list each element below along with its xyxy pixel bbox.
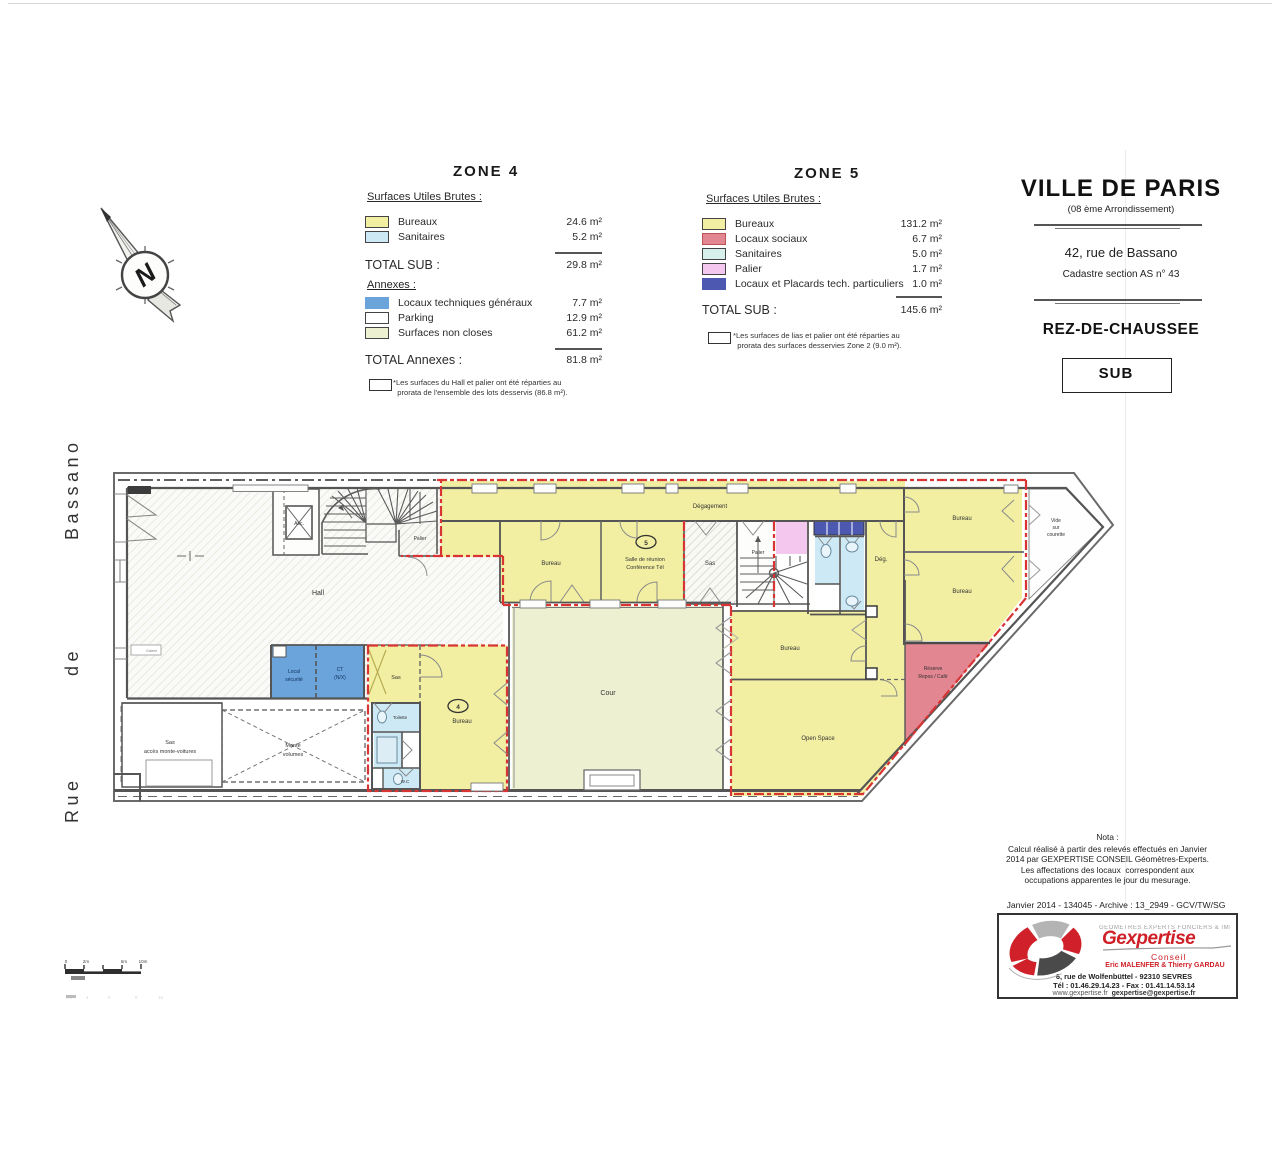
svg-text:CT: CT bbox=[337, 667, 344, 673]
svg-text:(N/X): (N/X) bbox=[334, 675, 346, 681]
svg-text:Bureau: Bureau bbox=[452, 719, 471, 725]
svg-text:Réserve: Réserve bbox=[924, 666, 943, 672]
svg-text:Bureau: Bureau bbox=[952, 516, 971, 522]
svg-text:10: 10 bbox=[158, 995, 164, 1000]
svg-text:Asc.: Asc. bbox=[294, 521, 304, 527]
svg-text:4: 4 bbox=[456, 704, 460, 711]
svg-text:2m: 2m bbox=[83, 959, 90, 964]
svg-text:10m: 10m bbox=[139, 959, 148, 964]
svg-text:Dégagement: Dégagement bbox=[693, 504, 728, 510]
svg-text:Monte: Monte bbox=[285, 743, 300, 749]
svg-text:sécurité: sécurité bbox=[285, 677, 303, 683]
svg-text:5: 5 bbox=[644, 540, 648, 547]
svg-text:Bureau: Bureau bbox=[541, 561, 560, 567]
svg-text:Dég.: Dég. bbox=[875, 557, 888, 563]
svg-text:Sas: Sas bbox=[391, 675, 401, 681]
svg-text:Sas: Sas bbox=[705, 561, 715, 567]
svg-text:Conférence Tél: Conférence Tél bbox=[626, 565, 664, 571]
svg-text:Salle de réunion: Salle de réunion bbox=[625, 557, 665, 563]
svg-text:Palier: Palier bbox=[752, 550, 765, 556]
svg-text:6: 6 bbox=[108, 995, 111, 1000]
svg-text:accès monte-voitures: accès monte-voitures bbox=[144, 749, 197, 755]
svg-text:Toilette: Toilette bbox=[393, 715, 408, 720]
svg-text:volumes: volumes bbox=[283, 752, 304, 758]
svg-text:W.C: W.C bbox=[401, 779, 410, 784]
svg-text:8: 8 bbox=[135, 995, 138, 1000]
svg-text:0: 0 bbox=[65, 959, 68, 964]
svg-text:sur: sur bbox=[1053, 525, 1060, 531]
svg-text:Cour: Cour bbox=[600, 690, 616, 697]
svg-text:Local: Local bbox=[288, 669, 300, 675]
svg-text:courette: courette bbox=[1047, 532, 1065, 538]
svg-text:Repos / Café: Repos / Café bbox=[918, 674, 947, 680]
svg-text:Open Space: Open Space bbox=[801, 736, 835, 742]
svg-text:6m: 6m bbox=[121, 959, 128, 964]
svg-text:Sas: Sas bbox=[165, 740, 175, 746]
svg-text:4: 4 bbox=[86, 995, 89, 1000]
svg-text:Bureau: Bureau bbox=[952, 589, 971, 595]
svg-text:Hall: Hall bbox=[312, 590, 325, 597]
svg-text:Vide: Vide bbox=[1051, 518, 1061, 524]
svg-text:Bureau: Bureau bbox=[780, 646, 799, 652]
svg-text:Palier: Palier bbox=[414, 536, 427, 542]
svg-text:Galerie: Galerie bbox=[146, 649, 157, 653]
